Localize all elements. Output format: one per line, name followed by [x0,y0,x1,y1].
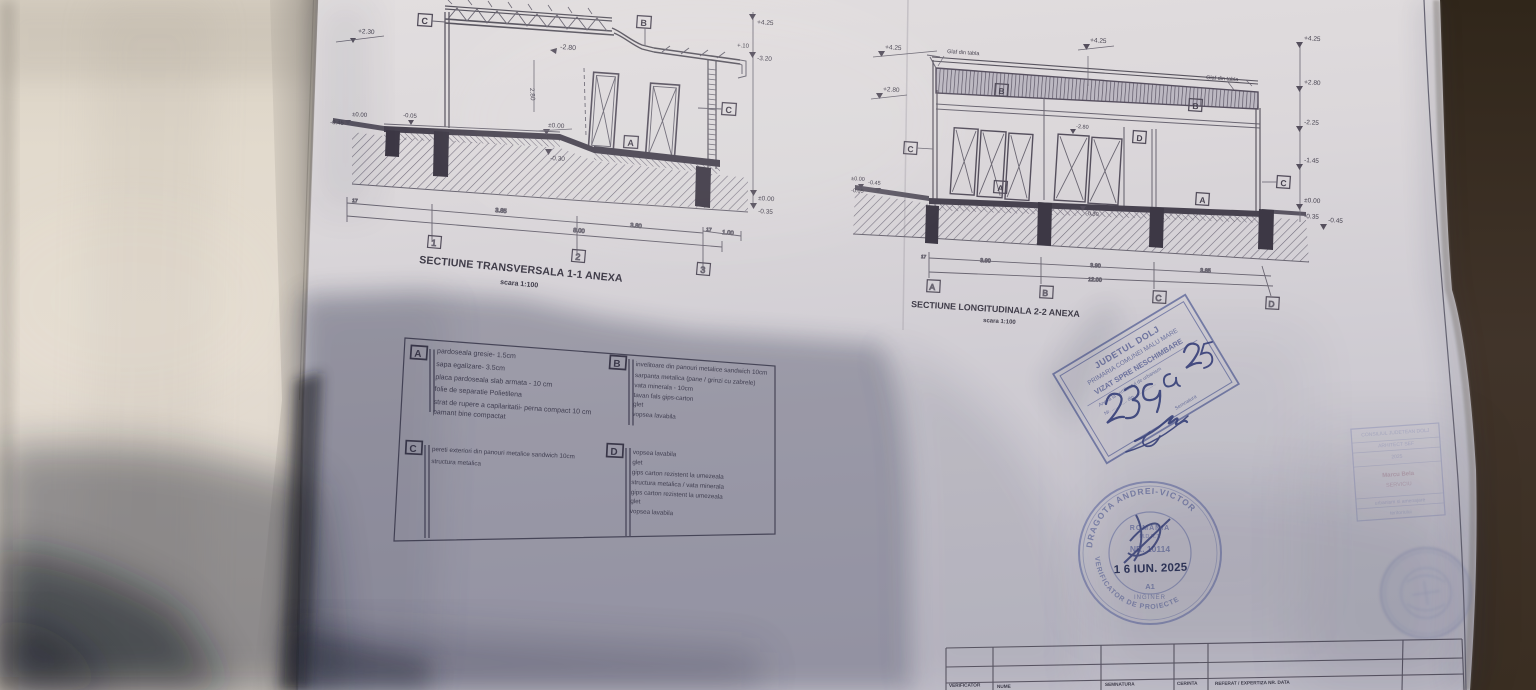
svg-text:17: 17 [921,254,927,259]
svg-text:-0.30: -0.30 [1086,211,1099,218]
svg-text:±0.00: ±0.00 [1304,197,1321,205]
svg-text:B: B [998,86,1005,96]
svg-text:D: D [1136,133,1143,143]
svg-text:-2.25: -2.25 [1304,119,1320,127]
svg-text:-2.80: -2.80 [1076,124,1089,131]
svg-text:+2.80: +2.80 [1304,79,1321,87]
svg-text:C: C [1155,293,1162,303]
svg-text:2: 2 [575,252,581,262]
svg-text:D: D [1268,299,1275,309]
svg-text:3: 3 [700,265,706,275]
svg-text:A: A [997,183,1004,193]
svg-text:A: A [1199,195,1206,205]
svg-text:C: C [421,16,429,26]
svg-text:B: B [1042,288,1049,298]
svg-text:3.90: 3.90 [980,258,991,265]
svg-text:-0.35: -0.35 [1304,213,1320,221]
svg-text:+4.25: +4.25 [1304,35,1321,43]
svg-text:-0.45: -0.45 [1328,217,1344,225]
svg-text:-0.05: -0.05 [403,113,418,120]
svg-text:B: B [1192,101,1199,111]
svg-text:3.85: 3.85 [495,208,508,215]
svg-text:A: A [929,282,936,292]
svg-text:1: 1 [431,238,437,248]
svg-text:3.85: 3.85 [1200,268,1211,275]
svg-text:+4.25: +4.25 [1090,37,1107,45]
svg-text:C: C [1280,178,1287,188]
svg-text:12.00: 12.00 [1088,277,1102,284]
svg-text:-1.45: -1.45 [1304,157,1320,165]
svg-text:3.90: 3.90 [1090,263,1101,270]
